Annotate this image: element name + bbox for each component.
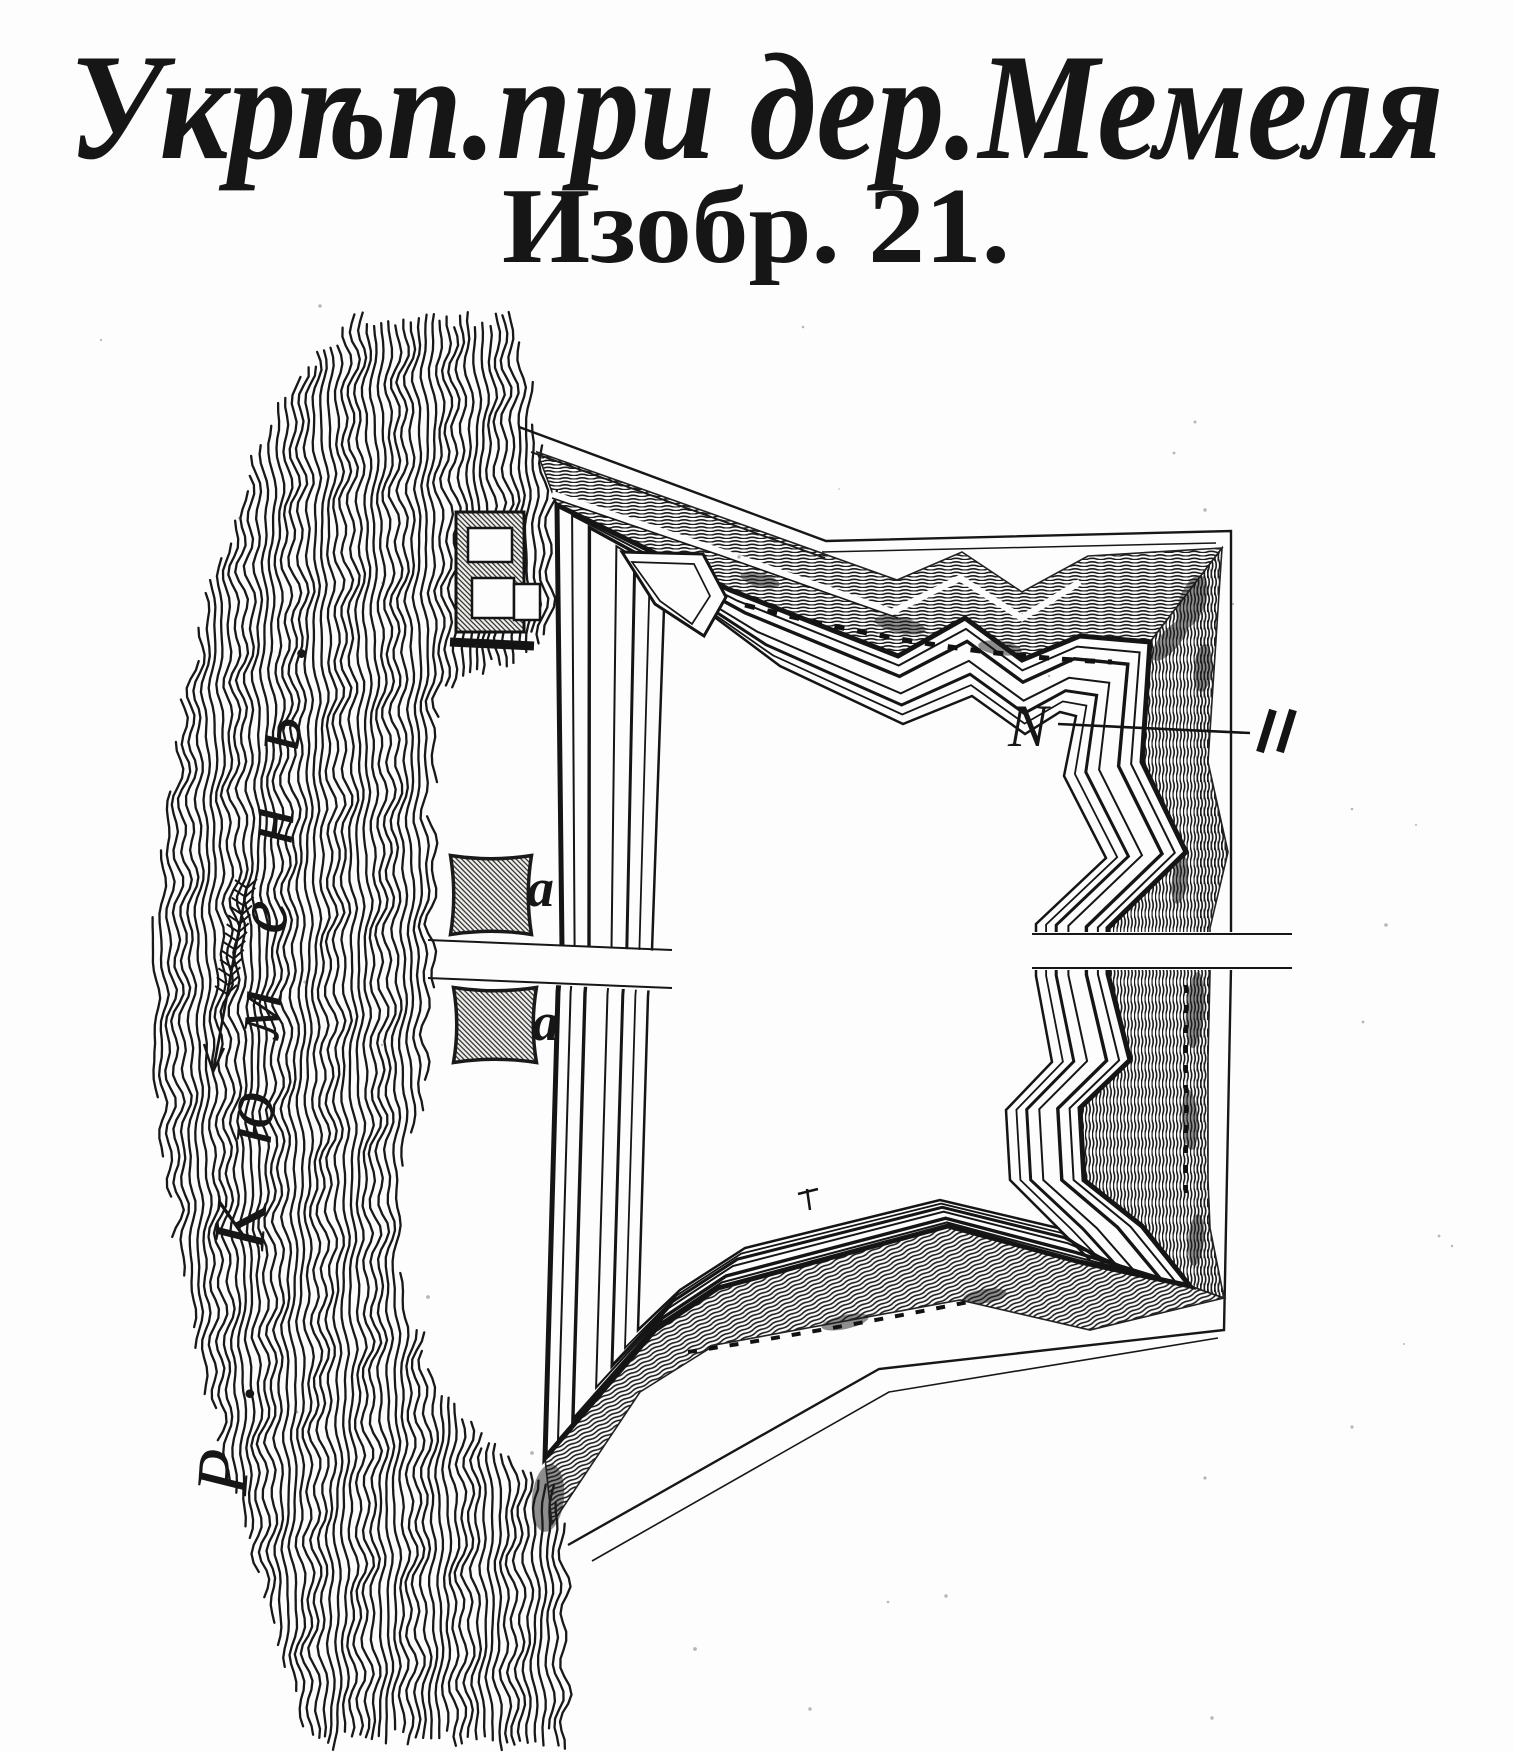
svg-text:N: N: [1007, 693, 1051, 759]
svg-text:Изобр. 21.: Изобр. 21.: [502, 167, 1010, 286]
svg-text:а: а: [527, 858, 554, 918]
svg-text:Укрѣп.при дер.Мемеля: Укрѣп.при дер.Мемеля: [69, 23, 1444, 191]
svg-text:а: а: [532, 992, 559, 1052]
